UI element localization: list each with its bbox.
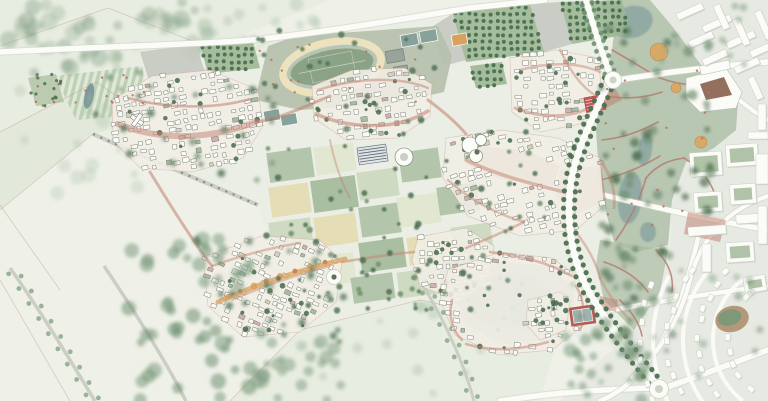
market-canopy — [293, 269, 298, 274]
masterplan-svg — [0, 0, 768, 401]
roundabout-1 — [605, 72, 622, 89]
ring-building — [395, 148, 413, 166]
sports-court-1 — [400, 33, 419, 48]
circular-plaza — [327, 270, 342, 285]
tan-plaza-3 — [695, 136, 707, 148]
masterplan-map — [0, 0, 768, 401]
park-pond-5 — [640, 222, 656, 242]
market-canopy — [323, 260, 327, 264]
market-canopy — [251, 283, 258, 290]
solar-roof-building — [357, 144, 388, 165]
sports-court-3 — [451, 33, 468, 46]
roundabout-2 — [650, 380, 669, 399]
tan-plaza-2 — [671, 83, 681, 93]
sports-court-2 — [419, 29, 438, 44]
